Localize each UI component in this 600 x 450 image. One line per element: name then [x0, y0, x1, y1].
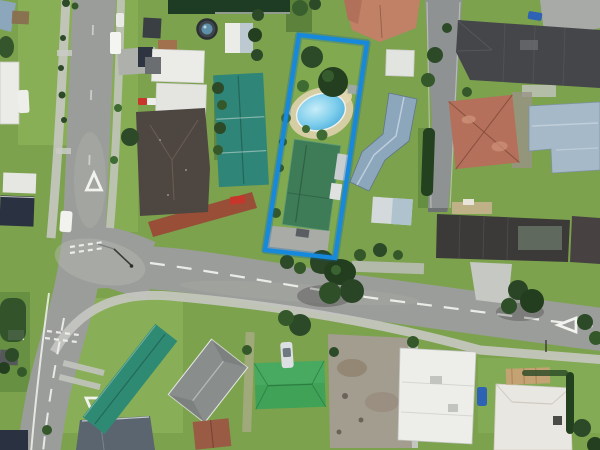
- house-roof-dark-green-top: [168, 0, 290, 14]
- building-roof-white-flat: [398, 348, 476, 444]
- dirt-spot: [337, 430, 342, 435]
- house-roof-terracotta: [449, 95, 520, 169]
- house-roof-bright-green: [254, 361, 326, 409]
- tree: [301, 46, 323, 68]
- car-white-small: [116, 13, 124, 27]
- van-white: [110, 32, 121, 54]
- deck-brown: [12, 11, 30, 25]
- house-roof-navy-west: [0, 195, 35, 226]
- dirt-spot: [359, 418, 364, 423]
- tree-highlight: [322, 70, 334, 82]
- truck-red-white: [138, 98, 156, 105]
- car-white-parked: [17, 90, 29, 114]
- driveway-crossing: [56, 148, 71, 154]
- dirt-patch: [365, 392, 399, 412]
- shed-white-top: [225, 23, 240, 53]
- deck-white: [463, 199, 474, 205]
- poolside-palm: [317, 130, 328, 141]
- house-roof-charcoal-long-top: [456, 20, 600, 88]
- house-roof-white-west: [0, 62, 19, 124]
- aerial-photo: [0, 0, 600, 450]
- tree-large: [318, 67, 348, 97]
- garage-dark: [142, 18, 161, 39]
- hedge-row: [0, 298, 26, 342]
- dirt-patch: [337, 359, 367, 377]
- building-roof-dark-long: [436, 214, 570, 262]
- shed-white-east: [386, 50, 415, 77]
- hedge-row: [566, 372, 574, 434]
- chimney: [553, 416, 562, 425]
- hedge-row: [421, 128, 435, 196]
- car-white-on-road: [59, 211, 72, 233]
- car-silver: [280, 342, 294, 369]
- dirt-spot: [342, 393, 348, 399]
- poolside-bush: [302, 125, 310, 133]
- shed-roof-brown: [193, 418, 232, 450]
- shed-gray-east: [371, 197, 413, 226]
- house-roof-navy-sw: [0, 430, 28, 450]
- house-roof-slate-sw: [76, 416, 155, 450]
- driveway-crossing: [57, 50, 72, 56]
- unit-dark-gray: [145, 57, 161, 74]
- shed-white: [3, 172, 37, 193]
- car-blue-driveway: [477, 387, 487, 406]
- house-roof-dark-east: [570, 216, 600, 264]
- hedge-row: [522, 370, 568, 376]
- above-ground-pool: [198, 20, 217, 39]
- roof-green-section: [518, 226, 562, 250]
- bush: [297, 80, 309, 92]
- house-roof-brown-hip: [136, 108, 210, 216]
- side-street-end: [428, 208, 448, 212]
- deck-orange: [158, 40, 177, 50]
- driveway-concrete: [470, 262, 512, 304]
- house-roof-white-hip: [494, 384, 572, 450]
